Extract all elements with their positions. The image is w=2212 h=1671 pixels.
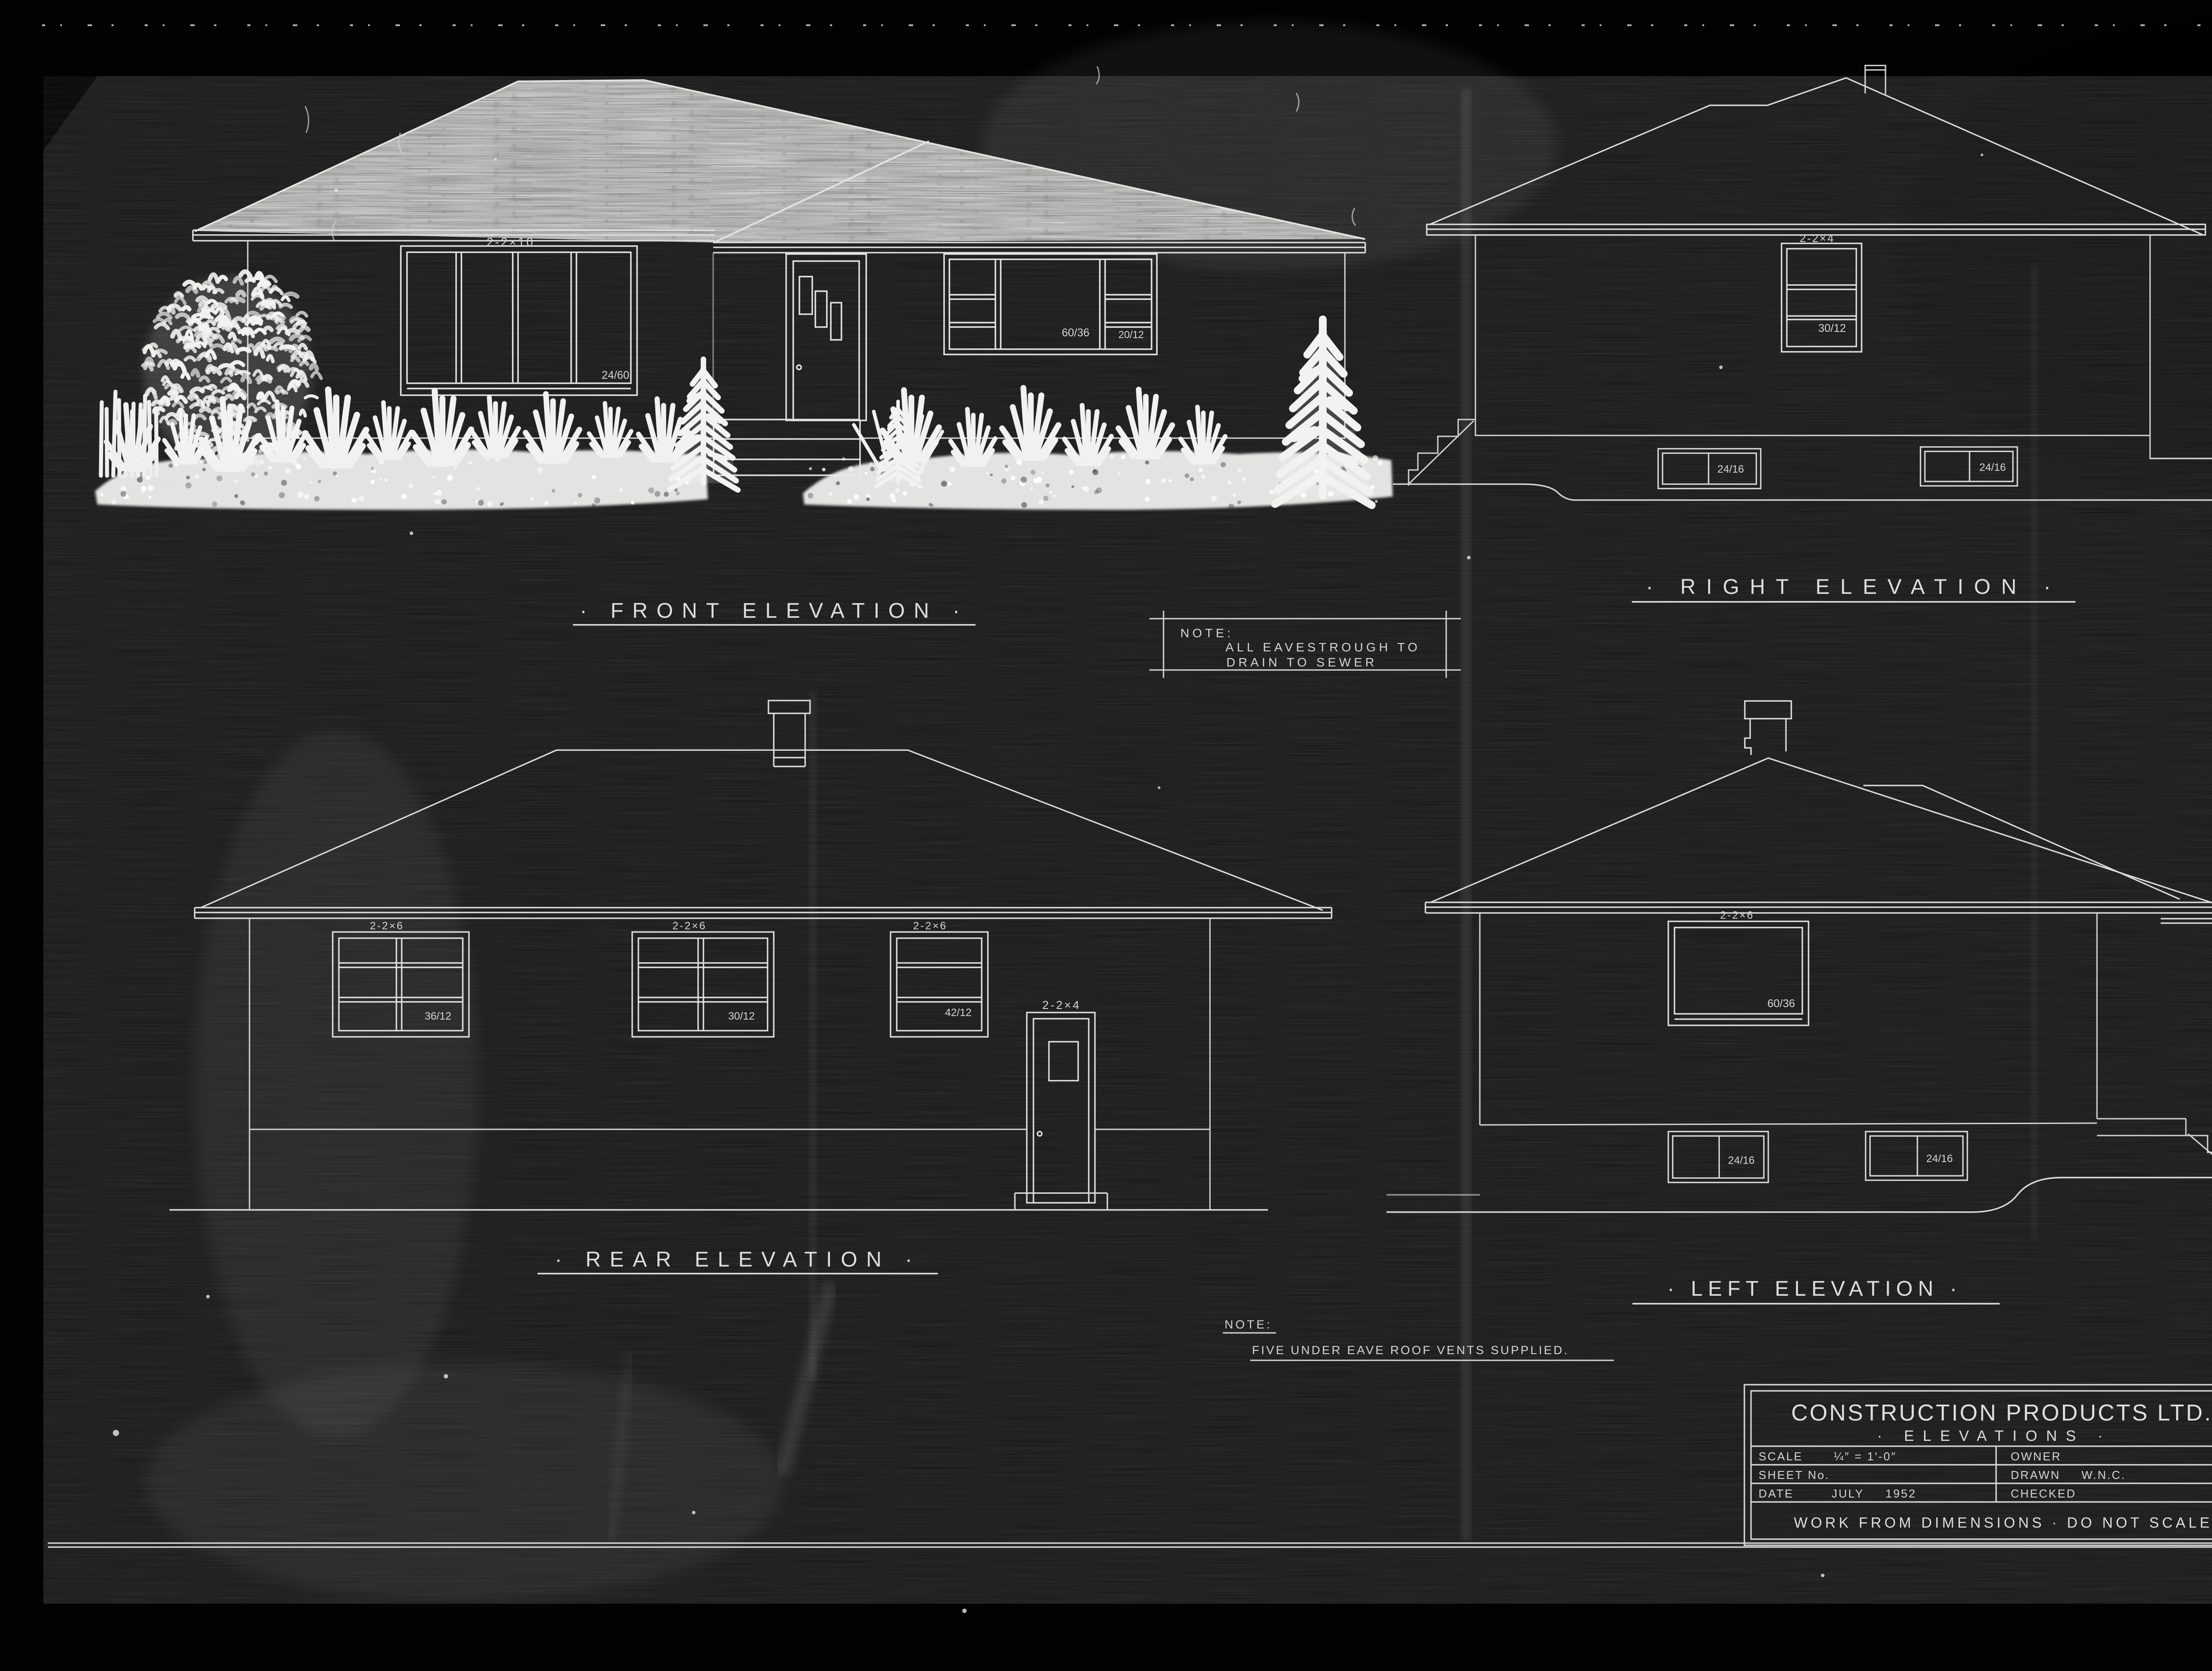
svg-text:DRAIN TO SEWER: DRAIN TO SEWER <box>1226 655 1377 669</box>
svg-text:1952: 1952 <box>1886 1487 1916 1500</box>
svg-text:60/36: 60/36 <box>1062 327 1090 339</box>
svg-text:24/16: 24/16 <box>1979 462 2006 474</box>
svg-text:· REAR ELEVATION ·: · REAR ELEVATION · <box>555 1248 921 1271</box>
svg-text:· LEFT ELEVATION ·: · LEFT ELEVATION · <box>1667 1277 1962 1301</box>
svg-text:24/60: 24/60 <box>602 369 630 381</box>
svg-text:CHECKED: CHECKED <box>2011 1487 2076 1500</box>
svg-text:24/16: 24/16 <box>1728 1155 1755 1167</box>
svg-text:· RIGHT ELEVATION ·: · RIGHT ELEVATION · <box>1646 575 2062 599</box>
svg-text:JULY: JULY <box>1832 1487 1864 1500</box>
svg-text:OWNER: OWNER <box>2011 1450 2062 1463</box>
svg-text:DRAWN: DRAWN <box>2011 1468 2060 1482</box>
svg-text:2-2×6: 2-2×6 <box>913 920 947 932</box>
svg-text:2-2×4: 2-2×4 <box>1042 998 1081 1012</box>
svg-text:2-2×10: 2-2×10 <box>487 235 535 249</box>
svg-text:30/12: 30/12 <box>1818 322 1846 335</box>
svg-text:24/16: 24/16 <box>1717 463 1744 475</box>
svg-text:ALL EAVESTROUGH TO: ALL EAVESTROUGH TO <box>1225 640 1421 654</box>
svg-text:NOTE:: NOTE: <box>1180 626 1234 640</box>
svg-text:DATE: DATE <box>1759 1487 1793 1500</box>
svg-text:24/16: 24/16 <box>1926 1153 1953 1165</box>
svg-text:2-2×6: 2-2×6 <box>1720 909 1754 921</box>
svg-text:· ELEVATIONS ·: · ELEVATIONS · <box>1877 1428 2112 1444</box>
svg-text:FIVE UNDER EAVE ROOF VENTS: FIVE UNDER EAVE ROOF VENTS SUPPLIED. <box>1252 1344 1569 1357</box>
svg-text:42/12: 42/12 <box>945 1007 972 1019</box>
svg-text:SHEET No.: SHEET No. <box>1759 1468 1830 1482</box>
svg-text:2-2×6: 2-2×6 <box>370 920 404 932</box>
svg-text:36/12: 36/12 <box>425 1010 451 1022</box>
svg-text:SCALE: SCALE <box>1759 1450 1803 1463</box>
svg-text:WORK FROM DIMENSIONS · DO NOT: WORK FROM DIMENSIONS · DO NOT SCALE <box>1794 1514 2212 1531</box>
svg-text:W.N.C.: W.N.C. <box>2081 1468 2126 1482</box>
svg-text:· FRONT ELEVATION ·: · FRONT ELEVATION · <box>580 599 969 623</box>
svg-text:NOTE:: NOTE: <box>1225 1318 1272 1331</box>
svg-text:20/12: 20/12 <box>1118 329 1144 340</box>
svg-text:CONSTRUCTION PRODUCTS LTD.: CONSTRUCTION PRODUCTS LTD. <box>1791 1400 2212 1426</box>
svg-text:2-2×4: 2-2×4 <box>1800 232 1835 245</box>
svg-text:¼″ = 1′-0″: ¼″ = 1′-0″ <box>1834 1450 1897 1463</box>
svg-text:30/12: 30/12 <box>728 1010 755 1022</box>
svg-text:60/36: 60/36 <box>1767 997 1795 1010</box>
svg-text:2-2×6: 2-2×6 <box>672 920 707 932</box>
